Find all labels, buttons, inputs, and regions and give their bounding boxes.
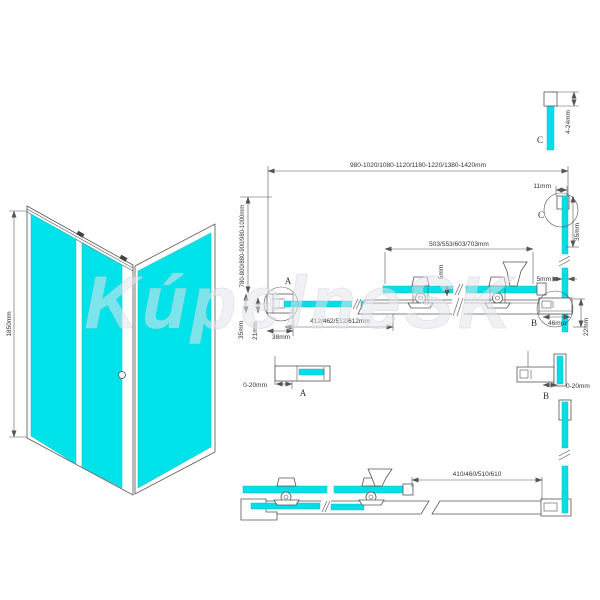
front-fixed-pane: [31, 214, 76, 464]
glass-gap-label: 5mm: [537, 276, 551, 283]
detail-a: 0-20mm A: [243, 356, 330, 398]
a-adjust-label: 0-20mm: [243, 382, 267, 389]
technical-drawing-canvas: 1850mm 980-1020/1080-1120/1180-1220/1380…: [0, 0, 600, 600]
detail-c-letter: C: [537, 135, 543, 145]
fixed-glass-bar: [331, 504, 364, 510]
bottom-rail: [432, 501, 543, 514]
side-glass-bar: [562, 196, 568, 254]
side-glass-bar: [562, 492, 568, 513]
bottom-fixed-width-label: 410/460/510/610: [453, 471, 502, 478]
height-dimension: 1850mm: [6, 211, 27, 437]
c-adjust-label: 4-24mm: [565, 110, 572, 134]
total-width-label: 980-1020/1080-1120/1180-1220/1380-1420mm: [350, 162, 486, 169]
height-label: 1850mm: [6, 311, 13, 336]
c-profile-width-label: 11mm: [533, 183, 551, 190]
end-bumper: [403, 484, 413, 495]
glass-edge: [557, 356, 563, 384]
shower-enclosure-drawing: 1850mm 980-1020/1080-1120/1180-1220/1380…: [0, 0, 600, 600]
section-b: B 46mm 22mm: [531, 291, 590, 336]
enclosure-3d-view: 1850mm: [6, 206, 215, 495]
wall-profile: [517, 367, 554, 382]
bottom-rail-section: 410/460/510/610: [241, 469, 571, 520]
detail-b: 0-20mm B: [517, 351, 590, 401]
c-glass-depth-label: 35mm: [574, 223, 581, 241]
glass-edge: [299, 369, 324, 375]
b-width-label: 46mm: [548, 320, 566, 327]
door-knob: [119, 372, 126, 379]
section-b-letter: B: [531, 318, 537, 328]
end-bumper: [537, 283, 546, 295]
b-height-label: 22mm: [583, 318, 590, 336]
watermark-text: KúpelneSK: [85, 261, 516, 344]
detail-a-letter: A: [300, 388, 307, 398]
wall-profile-sleeve: [544, 92, 557, 106]
section-c-letter: C: [538, 210, 544, 220]
detail-b-letter: B: [543, 391, 549, 401]
detail-c-top: 4-24mm C: [537, 92, 579, 150]
rail-end-profile: [539, 298, 572, 314]
b-adjust-label: 0-20mm: [566, 383, 590, 390]
side-glass-bar: [562, 402, 568, 448]
door-glass-bar: [334, 486, 404, 493]
roller-spacing-label: 503/553/603/703mm: [429, 241, 489, 248]
